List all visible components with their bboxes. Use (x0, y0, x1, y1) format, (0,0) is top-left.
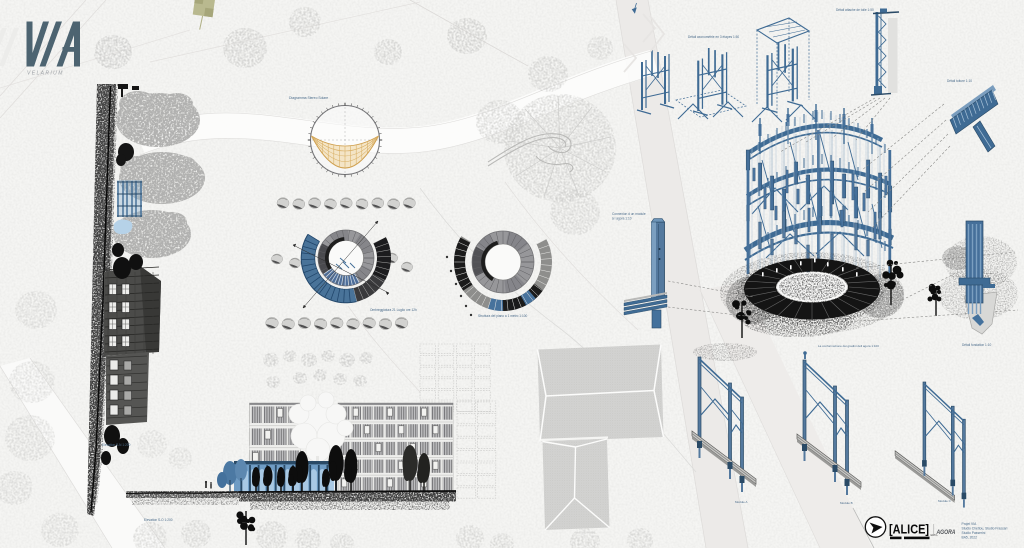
svg-text:[ALICE]: [ALICE] (889, 522, 929, 537)
svg-text:Elevation S-O 1:200: Elevation S-O 1:200 (144, 518, 173, 522)
svg-text:Studio Chettou, Studio Frascar: Studio Chettou, Studio Frascari (962, 527, 1008, 531)
svg-text:Détail axonométrie en 3 étapes: Détail axonométrie en 3 étapes 1:50 (688, 35, 739, 39)
svg-text:Module C: Module C (938, 499, 952, 503)
svg-text:La conformazione dei gradini d: La conformazione dei gradini dell agora … (818, 344, 879, 348)
svg-text:Struttura del piano a 1 metro: Struttura del piano a 1 metro 1:100 (478, 314, 527, 318)
svg-text:Projet VIA: Projet VIA (962, 522, 978, 526)
svg-text:Détail attache de toile 1:50: Détail attache de toile 1:50 (836, 8, 874, 12)
svg-text:AGORA: AGORA (936, 529, 956, 536)
svg-text:Studio Passerini: Studio Passerini (962, 531, 986, 535)
svg-text:Module B: Module B (840, 501, 853, 505)
svg-text:Connexion d un module: Connexion d un module (612, 212, 646, 216)
svg-text:Module A: Module A (735, 500, 748, 504)
svg-text:Détail toiture 1:10: Détail toiture 1:10 (947, 79, 972, 83)
svg-text:BA5, 2022: BA5, 2022 (962, 536, 978, 540)
svg-text:Diagramma Stereo Solare: Diagramma Stereo Solare (289, 96, 328, 100)
svg-text:à l agora 1:10: à l agora 1:10 (612, 217, 632, 221)
svg-text:Elevation S-N 1:200: Elevation S-N 1:200 (102, 443, 131, 447)
svg-text:Détail fondation 1:10: Détail fondation 1:10 (962, 343, 991, 347)
svg-text:Ombreggiatura 21 Luglio ore 12: Ombreggiatura 21 Luglio ore 12h (370, 308, 417, 312)
svg-text:VELARIUM: VELARIUM (27, 71, 64, 77)
